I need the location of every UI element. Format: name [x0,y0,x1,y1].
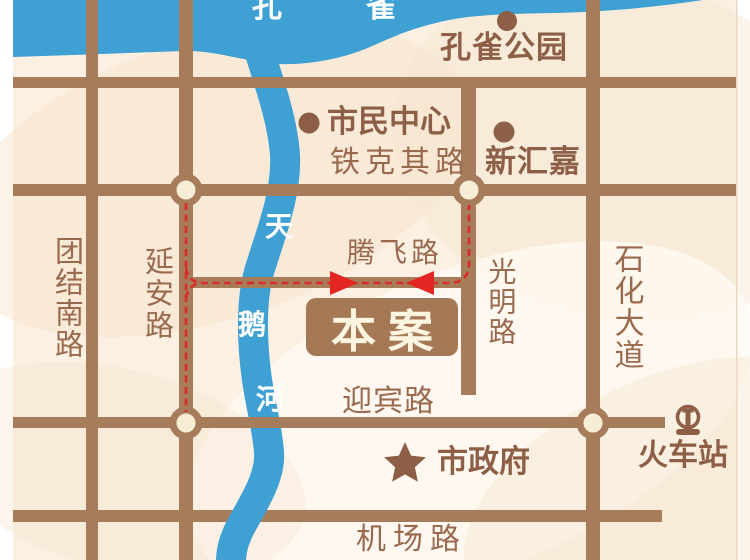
project-site-box: 本案 [306,298,458,356]
road-label-jichang: 机场路 [356,524,467,556]
road-label-yanan: 延安路 [141,246,171,342]
river-name-char: 天 [265,213,293,242]
road-label-tuanjie: 团结南路 [51,236,81,360]
road-tuanjie [86,0,98,560]
poi-dot-peacock-park [497,11,517,31]
road-jichang [13,510,662,522]
project-site-label: 本案 [331,295,445,360]
road-label-tengfei: 腾飞路 [347,239,443,268]
river-name-partial: 雀 [366,0,396,26]
junction-circle [173,410,199,436]
map-edge [736,0,738,560]
train-station-icon [676,407,700,436]
road-label-guangming: 光明路 [485,257,514,347]
poi-dot-civic-center [299,113,320,134]
junction-circle [173,177,199,203]
poi-label-xinhuijia: 新汇嘉 [485,146,581,179]
river-name-char: 鹅 [238,311,266,340]
poi-label-peacock-park: 孔雀公园 [440,32,568,65]
road-label-tiekeqi: 铁克其路 [330,147,470,179]
road-yingbin [13,417,665,428]
train-icon-stem [686,410,691,426]
junction-circle [456,177,482,203]
poi-label-train-station: 火车站 [638,440,728,472]
train-icon-base [676,429,700,435]
river-name-partial: 孔 [252,0,282,26]
road-label-shihua: 石化大道 [610,243,642,371]
river-name-char: 河 [256,386,284,415]
road-label-yingbin: 迎宾路 [342,386,435,418]
road-horizontal-top [13,77,737,88]
road-shihua [586,0,600,560]
road-tiekeqi [13,184,737,196]
poi-label-city-hall: 市政府 [437,446,530,479]
location-map: 孔 雀 孔雀公园 市民中心 新汇嘉 市政府 火车站 铁克其路 腾飞路 迎宾路 机… [0,0,750,560]
poi-dot-xinhuijia [494,122,515,143]
poi-label-civic-center: 市民中心 [327,106,451,139]
junction-circle [580,410,606,436]
